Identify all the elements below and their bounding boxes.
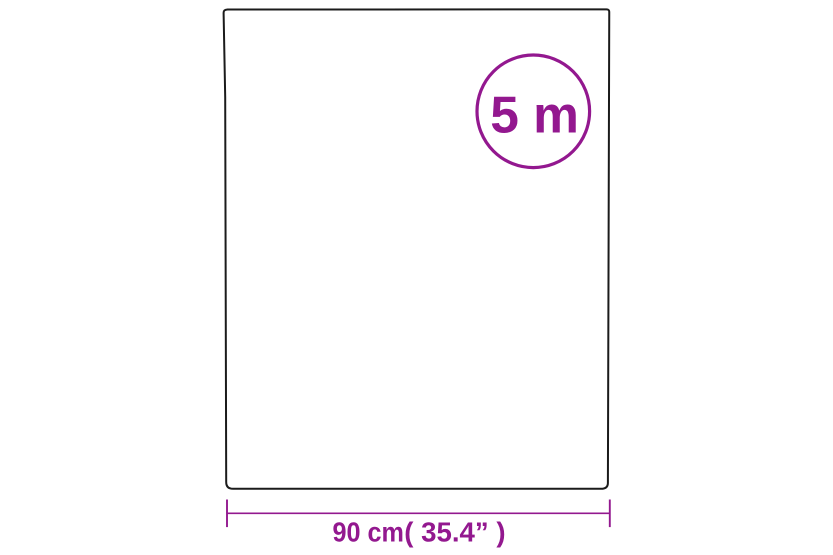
svg-text:90 cm: 90 cm (333, 516, 404, 548)
svg-text:5 m: 5 m (490, 86, 579, 144)
svg-text:( 35.4” ): ( 35.4” ) (404, 516, 505, 547)
